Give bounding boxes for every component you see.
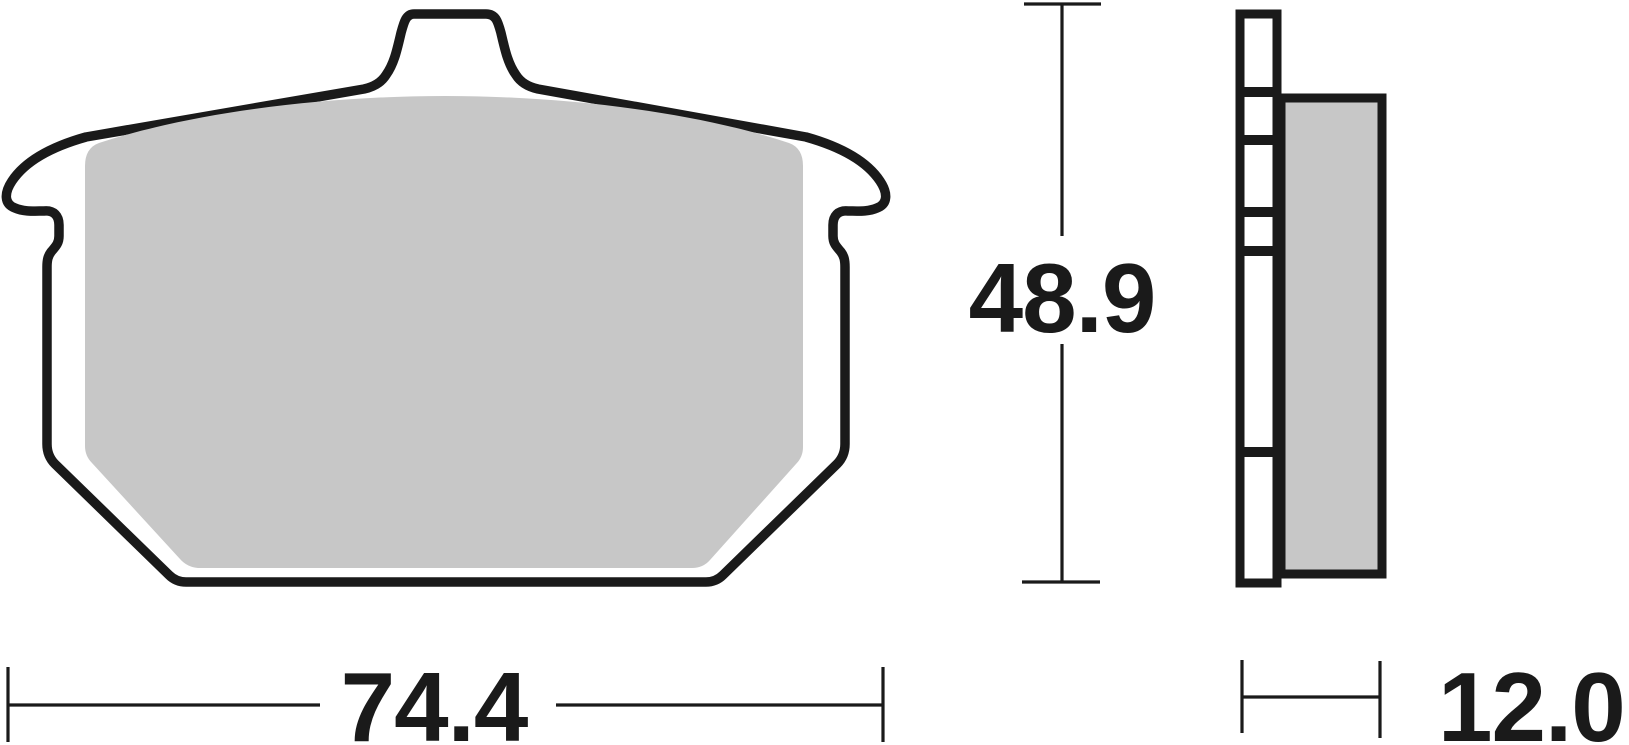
- side-view-friction-material: [1281, 98, 1382, 574]
- height-dimension: 48.9: [969, 4, 1156, 582]
- drawing-svg: 48.9 74.4 12.0: [0, 0, 1629, 745]
- width-dim-label: 74.4: [341, 652, 528, 745]
- thickness-dimension: 12.0: [1242, 652, 1625, 745]
- brake-pad-technical-drawing: 48.9 74.4 12.0: [0, 0, 1629, 745]
- height-dim-label: 48.9: [969, 243, 1156, 353]
- front-view-friction-material: [85, 96, 803, 568]
- thickness-dim-label: 12.0: [1438, 652, 1625, 745]
- front-view: [6, 14, 885, 582]
- side-view-backing-plate: [1240, 14, 1277, 583]
- side-view: [1236, 14, 1382, 583]
- width-dimension: 74.4: [8, 652, 883, 745]
